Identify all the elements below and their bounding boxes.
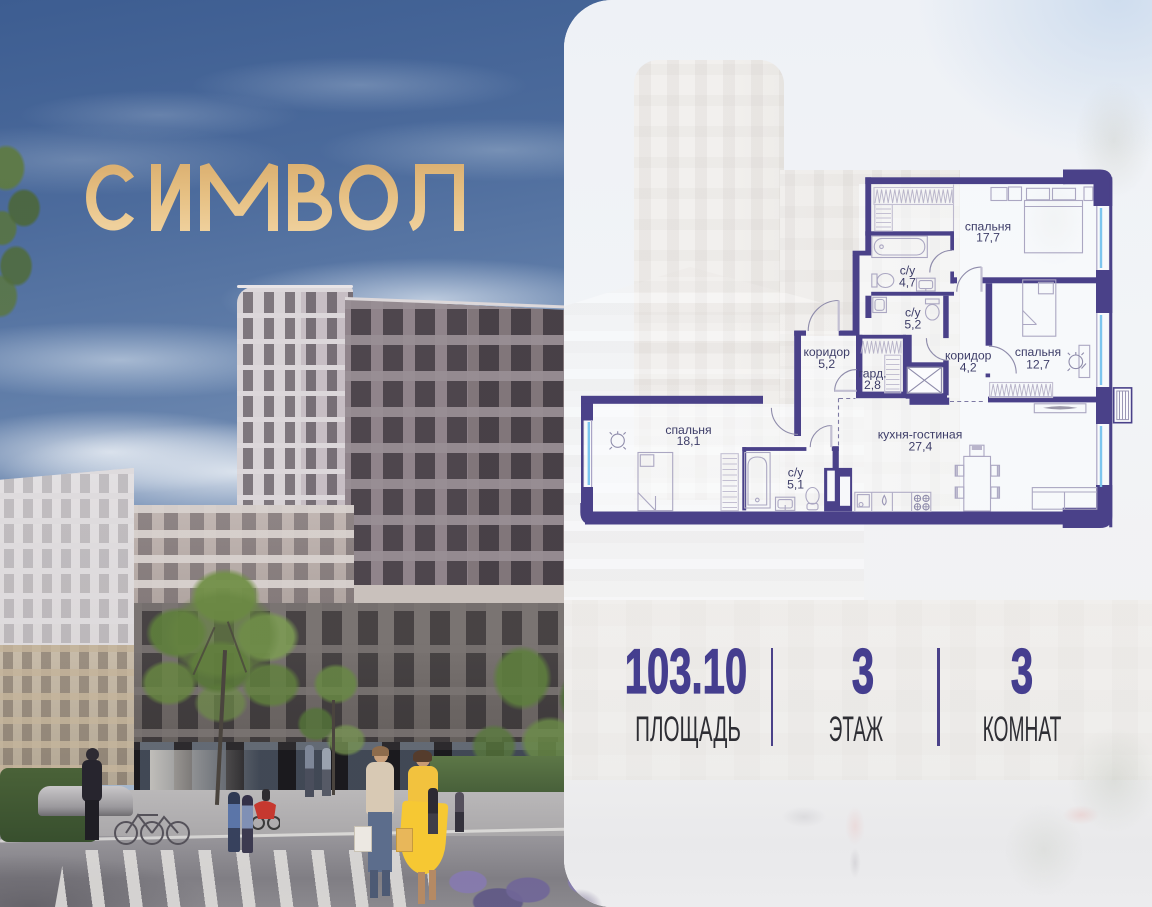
svg-text:5,2: 5,2 — [818, 357, 835, 371]
svg-text:17,7: 17,7 — [976, 231, 1000, 245]
svg-text:18,1: 18,1 — [677, 434, 701, 448]
svg-text:2,8: 2,8 — [864, 378, 881, 392]
svg-text:4,7: 4,7 — [899, 276, 916, 290]
svg-text:12,7: 12,7 — [1026, 357, 1050, 371]
svg-text:5,2: 5,2 — [904, 318, 921, 332]
svg-text:4,2: 4,2 — [960, 360, 977, 374]
svg-text:27,4: 27,4 — [909, 439, 933, 453]
svg-text:5,1: 5,1 — [787, 478, 804, 492]
